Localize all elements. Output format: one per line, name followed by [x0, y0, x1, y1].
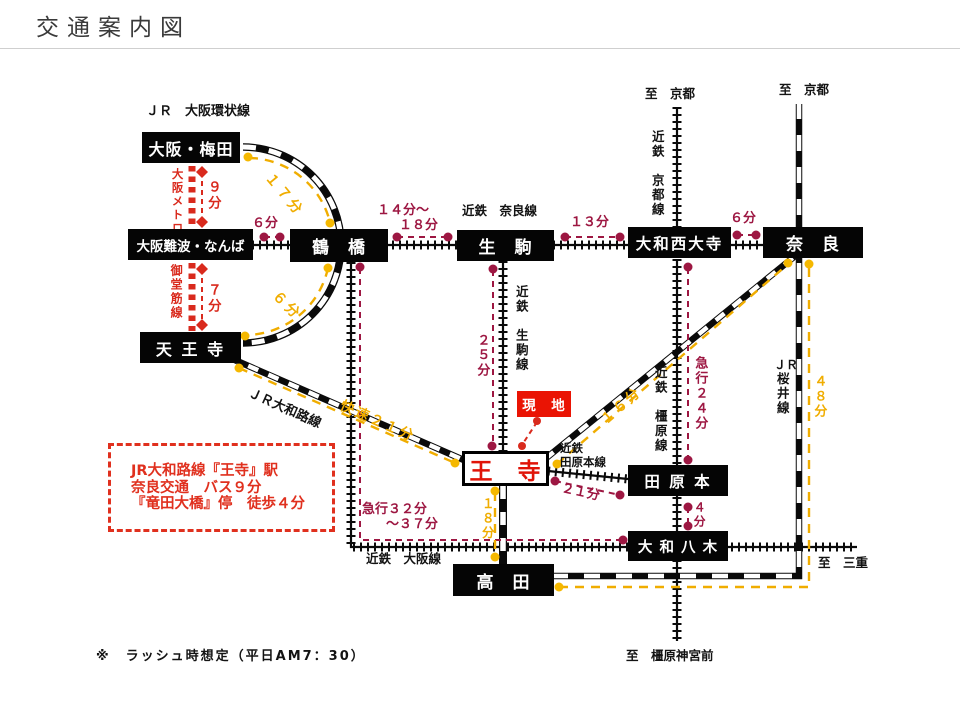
slide: 交通案内図 — [0, 0, 960, 720]
kintetsu-osaka-line-label: 近鉄 大阪線 — [366, 552, 441, 567]
station-ikoma: 生 駒 — [457, 230, 554, 261]
time-umeda-namba: ９分 — [204, 180, 220, 211]
time-ikoma-saidaiji: １３分 — [570, 215, 609, 230]
station-yagi: 大 和 八 木 — [628, 531, 728, 561]
station-nara: 奈 良 — [763, 227, 863, 258]
dest-kashihara-jingu: 至 橿原神宮前 — [626, 649, 714, 664]
kintetsu-tawaramoto-line-track — [548, 471, 628, 479]
dest-kyoto-left: 至 京都 — [645, 87, 695, 102]
time-namba-tsuruhashi: ６分 — [252, 216, 278, 231]
access-info-line2: 奈良交通 バス９分 — [131, 480, 332, 497]
genchi-connector — [522, 422, 537, 445]
time-oji-takada: １８分 — [479, 497, 494, 541]
kintetsu-ikoma-line-label: 近鉄 生駒線 — [513, 285, 528, 372]
time-tsuruhashi-yagi-exp: 急行３２分～３７分 — [362, 502, 438, 533]
access-info-line1: JR大和路線『王寺』駅 — [131, 463, 332, 480]
access-info-box: JR大和路線『王寺』駅奈良交通 バス９分『竜田大橋』停 徒歩４分 — [108, 443, 335, 532]
metro-line-label: 大阪メトロ — [170, 168, 184, 236]
station-takada: 高 田 — [453, 564, 554, 596]
time-saidaiji-nara: ６分 — [730, 211, 756, 226]
jr-loop-line-label: ＪＲ 大阪環状線 — [146, 104, 250, 119]
genchi-marker: 現 地 — [517, 391, 571, 417]
access-info-line3: 『竜田大橋』停 徒歩４分 — [131, 496, 332, 513]
kintetsu-tawaramoto-line-label: 近鉄田原本線 — [560, 442, 606, 469]
dest-mie: 至 三重 — [818, 556, 868, 571]
dest-kyoto-right: 至 京都 — [779, 83, 829, 98]
footnote: ※ ラッシュ時想定（平日AM7：30） — [96, 649, 366, 664]
time-tawaramoto-yagi: ４分 — [692, 501, 706, 529]
time-namba-tennoji: ７分 — [204, 283, 220, 314]
station-tsuruhashi: 鶴 橋 — [290, 229, 388, 262]
kintetsu-nara-line-label: 近鉄 奈良線 — [462, 204, 537, 219]
time-ikoma-oji: ２５分 — [474, 333, 489, 378]
kintetsu-kyoto-line-label: 近鉄 京都線 — [649, 130, 664, 217]
time-takada-nara-sakurai: ４８分 — [811, 374, 826, 419]
station-oji: 王 寺 — [462, 451, 549, 486]
station-namba: 大阪難波・なんば — [128, 229, 253, 260]
station-tennoji: 天 王 寺 — [140, 332, 241, 363]
station-tawaramoto: 田 原 本 — [628, 465, 728, 496]
time-saidaiji-tawaramoto-exp: 急行２４分 — [692, 356, 707, 431]
midosuji-line-label: 御堂筋線 — [169, 264, 183, 320]
kintetsu-kashihara-line-label: 近鉄 橿原線 — [652, 366, 667, 453]
station-umeda: 大阪・梅田 — [142, 132, 240, 163]
jr-sakurai-line-label: ＪＲ桜井線 — [774, 358, 798, 416]
station-saidaiji: 大和西大寺 — [628, 227, 731, 258]
